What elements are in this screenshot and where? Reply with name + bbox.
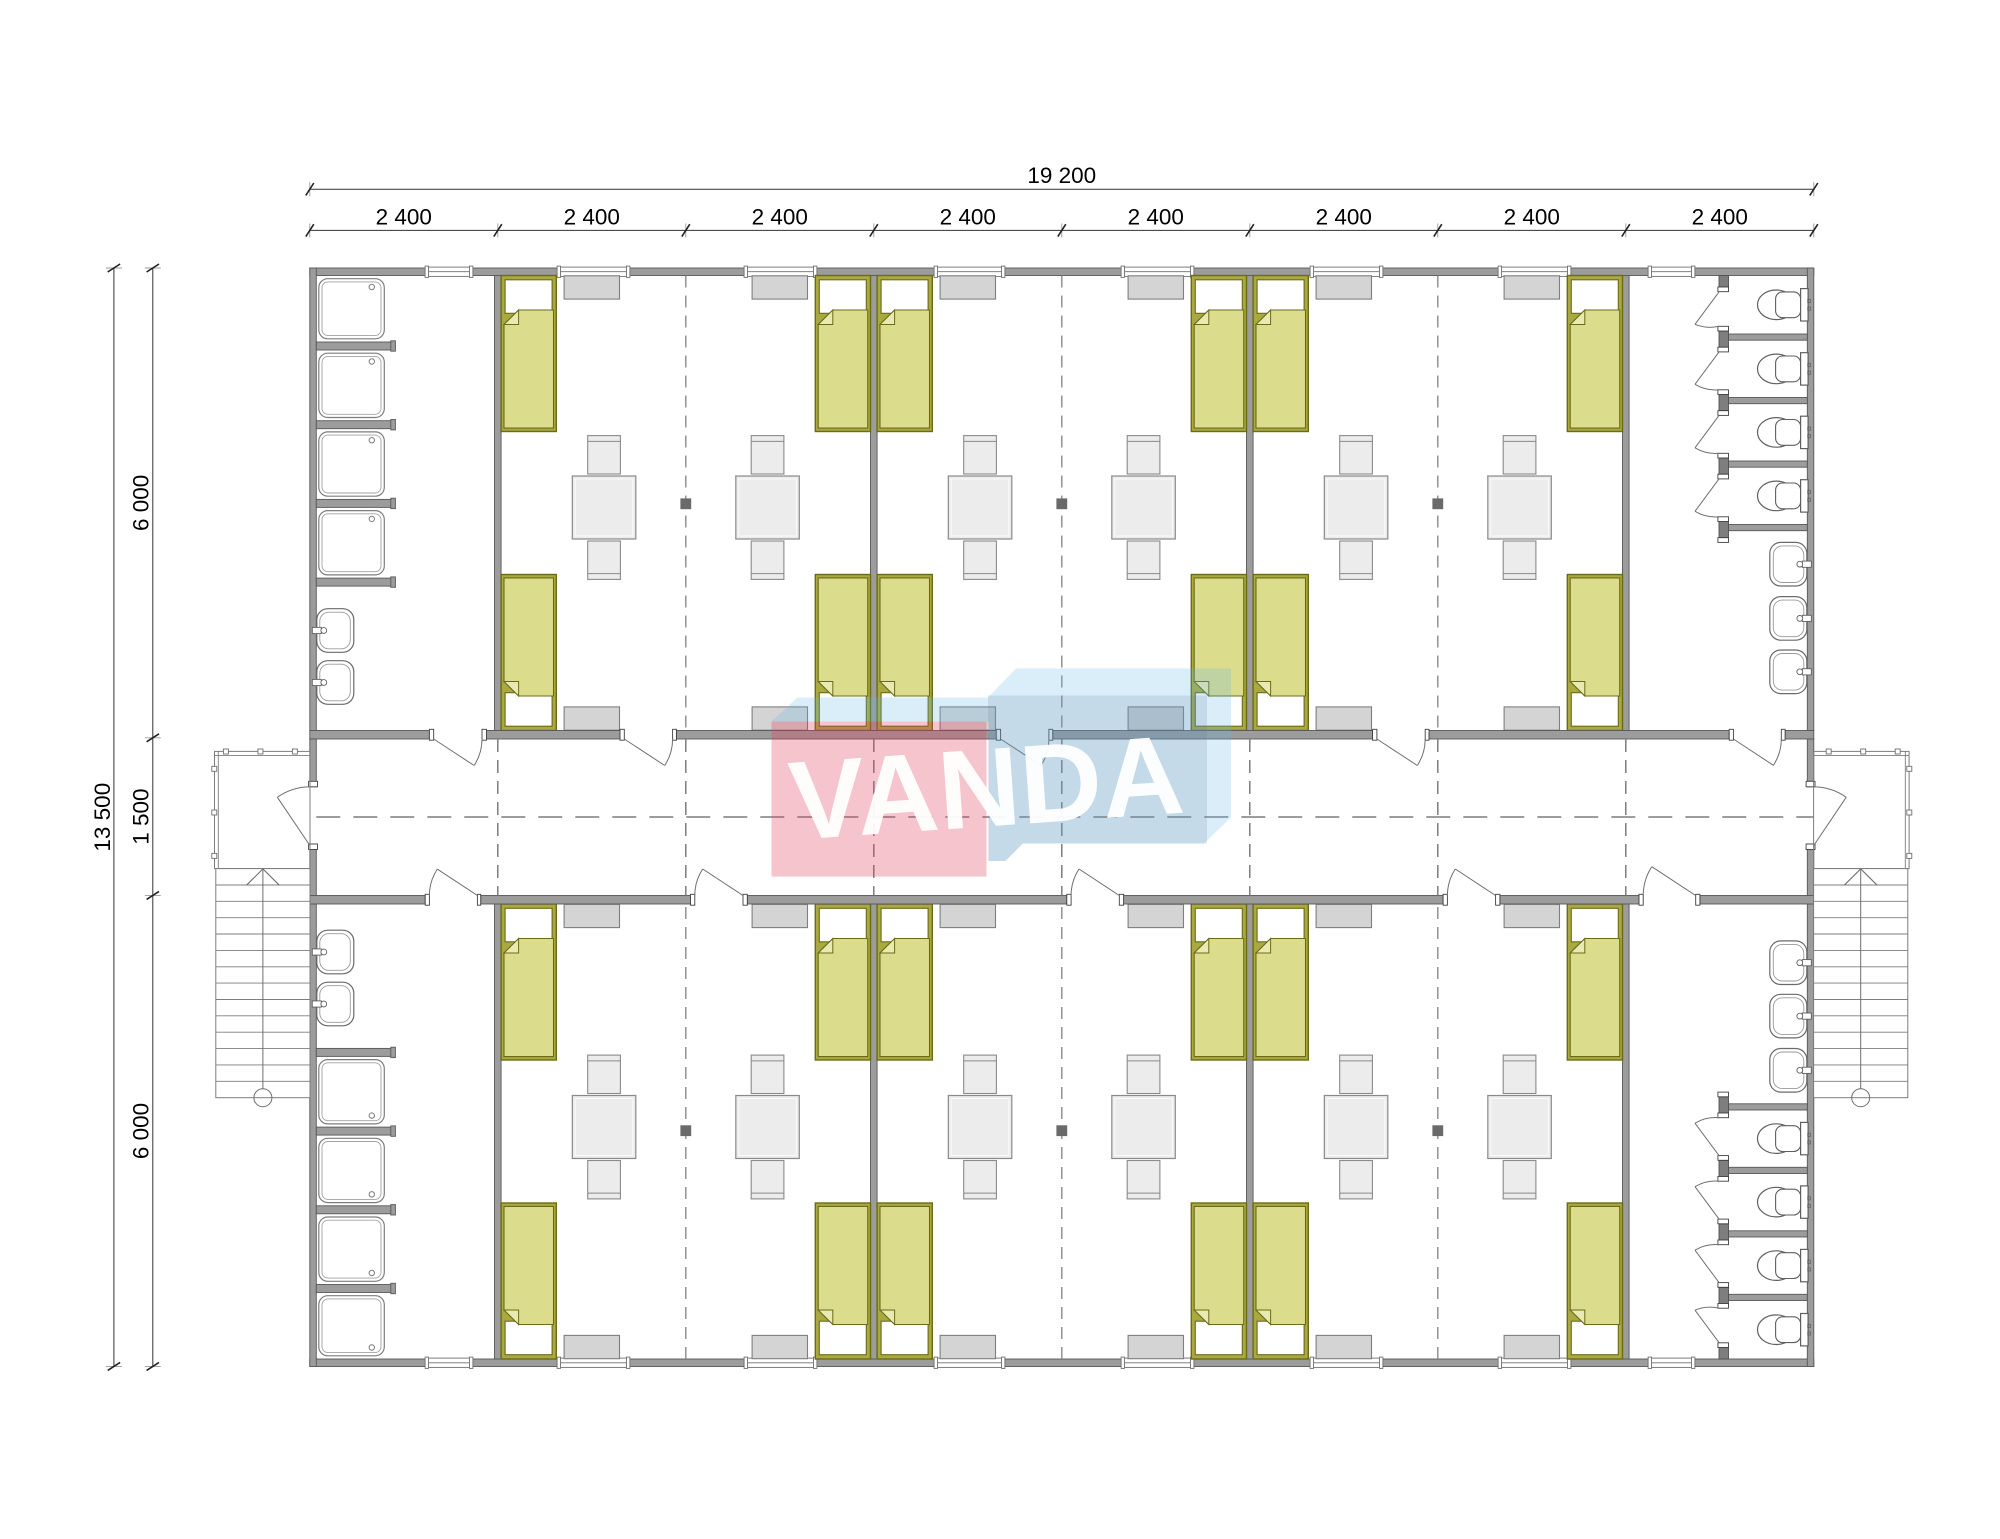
svg-text:2 400: 2 400 (1504, 205, 1560, 230)
svg-text:2 400: 2 400 (1692, 205, 1748, 230)
svg-text:2 400: 2 400 (940, 205, 996, 230)
svg-text:2 400: 2 400 (564, 205, 620, 230)
svg-text:13 500: 13 500 (90, 783, 115, 852)
svg-text:6 000: 6 000 (129, 475, 154, 531)
svg-text:1 500: 1 500 (129, 788, 154, 844)
svg-text:19 200: 19 200 (1027, 163, 1096, 188)
svg-text:2 400: 2 400 (1128, 205, 1184, 230)
svg-text:2 400: 2 400 (376, 205, 432, 230)
svg-text:2 400: 2 400 (752, 205, 808, 230)
svg-text:2 400: 2 400 (1316, 205, 1372, 230)
svg-text:6 000: 6 000 (129, 1103, 154, 1159)
